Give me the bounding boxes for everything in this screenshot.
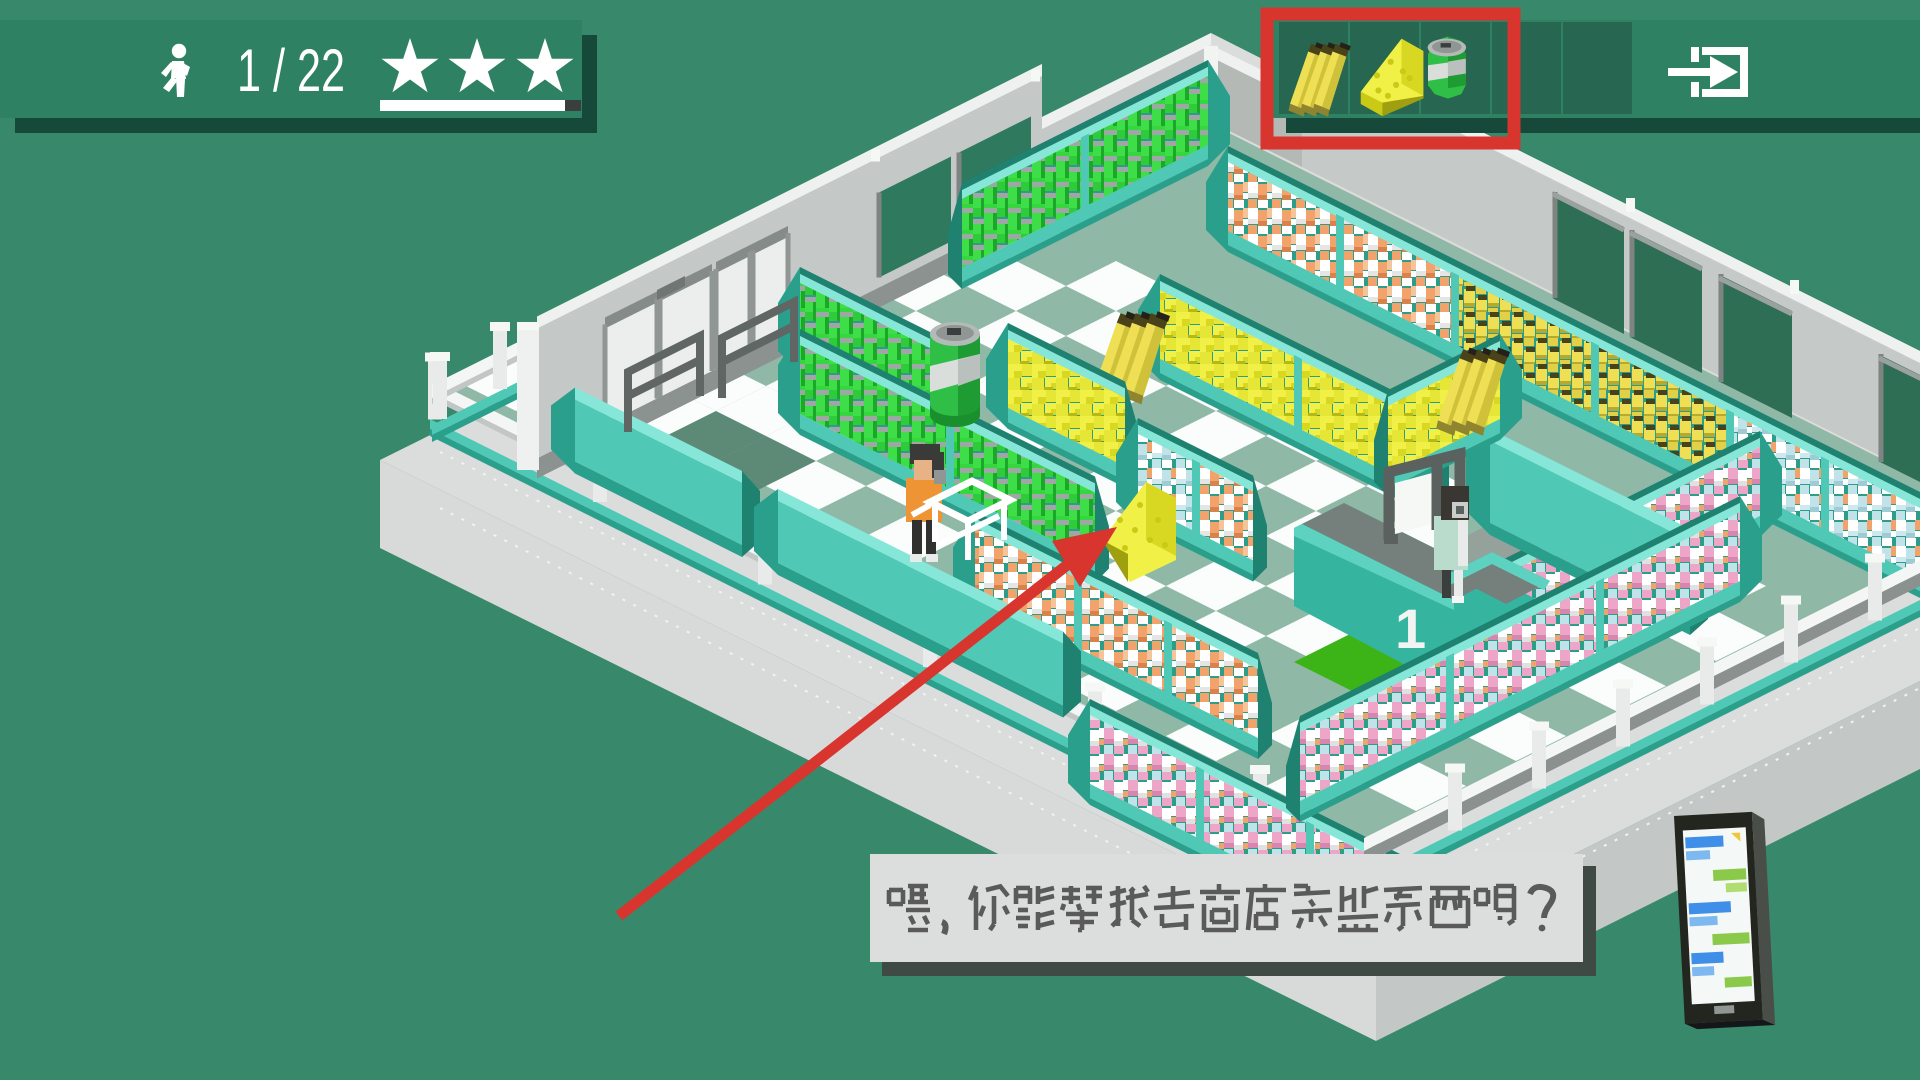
svg-text:1 / 22: 1 / 22 [237,38,345,105]
svg-text:1: 1 [1395,597,1426,660]
